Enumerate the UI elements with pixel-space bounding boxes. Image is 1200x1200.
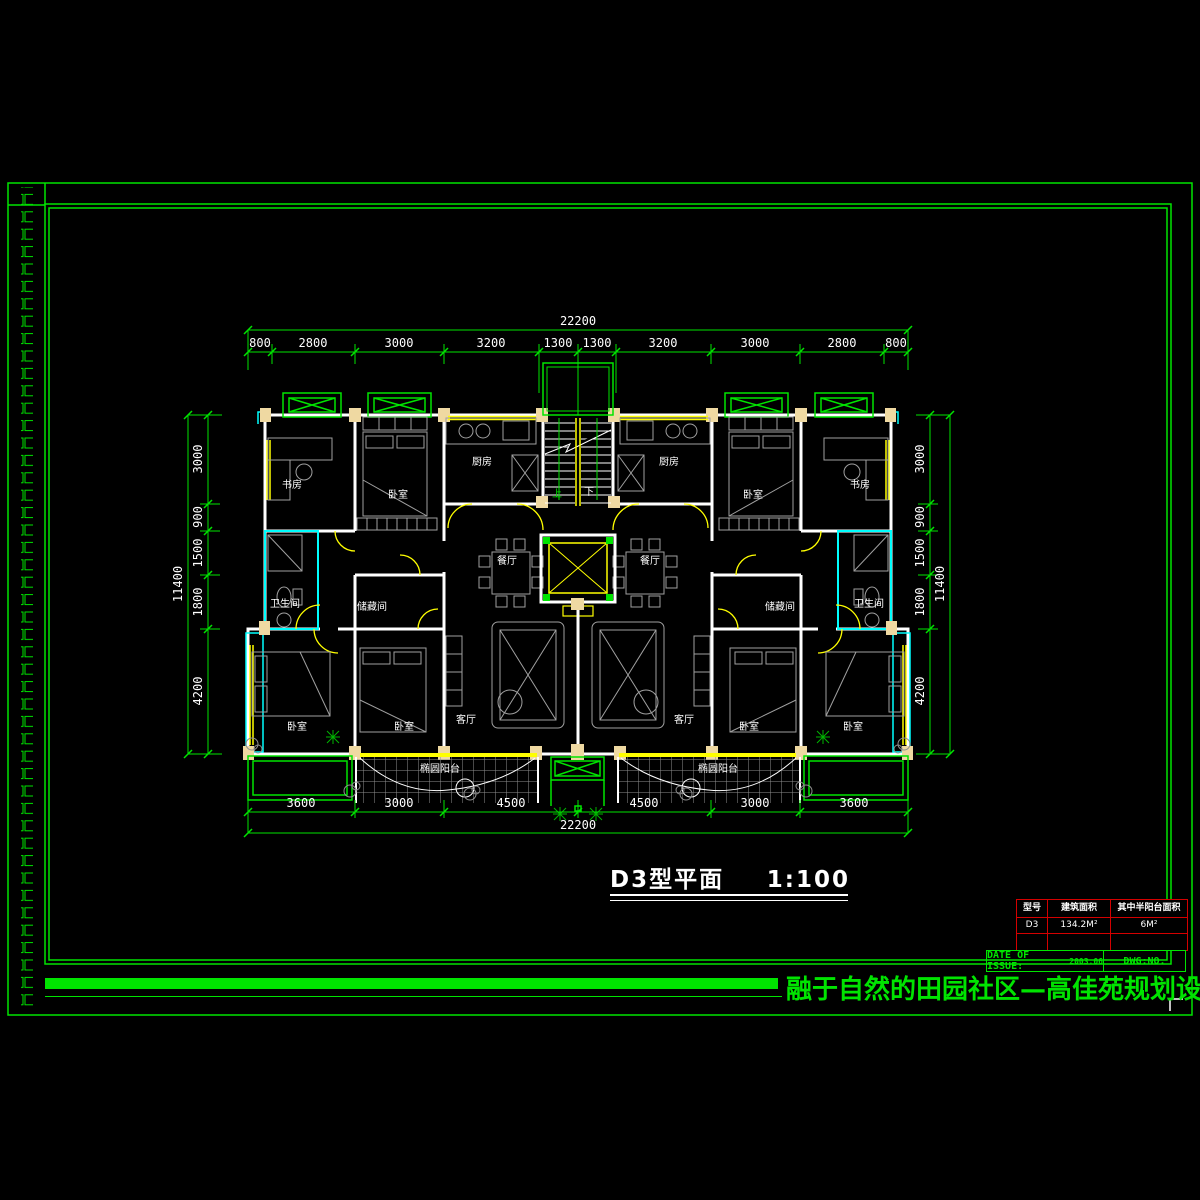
room-label: 卧室 — [739, 720, 759, 733]
dim-label: 4500 — [497, 796, 526, 810]
dim-label: 900 — [191, 506, 205, 528]
banner-underline — [45, 996, 782, 997]
dim-label: 3200 — [649, 336, 678, 350]
table-header-model: 型号 — [1017, 900, 1048, 918]
room-label: 卫生间 — [854, 597, 884, 610]
room-label: 储藏间 — [357, 600, 387, 613]
room-label: 卧室 — [388, 488, 408, 501]
table-header-balcony-area: 其中半阳台面积 — [1111, 900, 1188, 918]
dim-label: 11400 — [933, 566, 947, 602]
room-label: 客厅 — [674, 713, 694, 726]
sheet-frame — [8, 183, 1192, 1015]
title-block-table: 型号 建筑面积 其中半阳台面积 D3 134.2M² 6M² — [1016, 899, 1188, 951]
title-underline-thin — [610, 900, 848, 901]
room-label: 储藏间 — [765, 600, 795, 613]
stair-down-label: 下 — [584, 487, 594, 498]
binding-margin-squares — [21, 187, 33, 1009]
title-underline — [610, 894, 848, 896]
table-cell-model: D3 — [1017, 918, 1048, 934]
dim-label: 1800 — [191, 588, 205, 617]
dim-label: 800 — [885, 336, 907, 350]
cad-viewport: 22200 800 2800 3000 3200 1300 1300 3200 … — [0, 0, 1200, 1200]
table-cell-empty — [1111, 934, 1188, 951]
room-label: 卧室 — [743, 488, 763, 501]
table-cell-area: 134.2M² — [1048, 918, 1111, 934]
banner-bar — [45, 978, 778, 989]
center-wall — [571, 598, 584, 760]
room-label: 厨房 — [659, 455, 679, 468]
dim-label: 3000 — [385, 796, 414, 810]
dim-label: 3000 — [385, 336, 414, 350]
dim-label: 4200 — [913, 677, 927, 706]
dim-label: 3200 — [477, 336, 506, 350]
dim-label: 1500 — [913, 539, 927, 568]
dim-label: 1300 — [544, 336, 573, 350]
dim-label: 4200 — [191, 677, 205, 706]
cad-drawing: 22200 800 2800 3000 3200 1300 1300 3200 … — [0, 0, 1200, 1200]
dim-label: 3000 — [741, 796, 770, 810]
dim-label: 2800 — [299, 336, 328, 350]
drawing-title-name: D3型平面 — [610, 860, 724, 894]
dim-label: 11400 — [171, 566, 185, 602]
floor-plan — [243, 363, 913, 821]
room-label: 卫生间 — [270, 597, 300, 610]
dim-label: 1500 — [191, 539, 205, 568]
dim-label: 3600 — [287, 796, 316, 810]
room-label: 卧室 — [394, 720, 414, 733]
dim-label: 1300 — [583, 336, 612, 350]
room-label: 卧室 — [287, 720, 307, 733]
dim-label: 900 — [913, 506, 927, 528]
dim-label: 2800 — [828, 336, 857, 350]
dim-label: 3000 — [191, 445, 205, 474]
room-label: 椭圆阳台 — [420, 762, 460, 775]
room-label: 厨房 — [472, 455, 492, 468]
table-cell-empty — [1048, 934, 1111, 951]
dim-label: 4500 — [630, 796, 659, 810]
table-cell-balcony-area: 6M² — [1111, 918, 1188, 934]
dim-label: 3600 — [840, 796, 869, 810]
dim-label: 3000 — [913, 445, 927, 474]
drawing-title: D3型平面 1:100 — [610, 860, 850, 894]
drawing-title-scale: 1:100 — [767, 867, 850, 893]
room-label: 书房 — [282, 478, 302, 491]
room-label: 餐厅 — [640, 554, 660, 567]
room-label: 书房 — [850, 478, 870, 491]
dim-label: 3000 — [741, 336, 770, 350]
room-label: 卧室 — [843, 720, 863, 733]
stair-up-label: 上 — [552, 488, 562, 500]
dim-label: 1800 — [913, 588, 927, 617]
project-banner: 融于自然的田园社区—高佳苑规划设计方案 — [786, 969, 1186, 1006]
table-header-area: 建筑面积 — [1048, 900, 1111, 918]
issue-date-cell: DATE OF ISSUE: 2003.06 — [987, 951, 1104, 971]
dim-label: 22200 — [560, 818, 596, 832]
room-label: 餐厅 — [497, 554, 517, 567]
issue-date-value: 2003.06 — [1069, 957, 1103, 966]
dim-label: 800 — [249, 336, 271, 350]
dim-label: 22200 — [560, 314, 596, 328]
room-label: 客厅 — [456, 713, 476, 726]
dwg-no-cell: DWG:NO. — [1104, 956, 1185, 967]
room-label: 椭圆阳台 — [698, 762, 738, 775]
table-cell-empty — [1017, 934, 1048, 951]
